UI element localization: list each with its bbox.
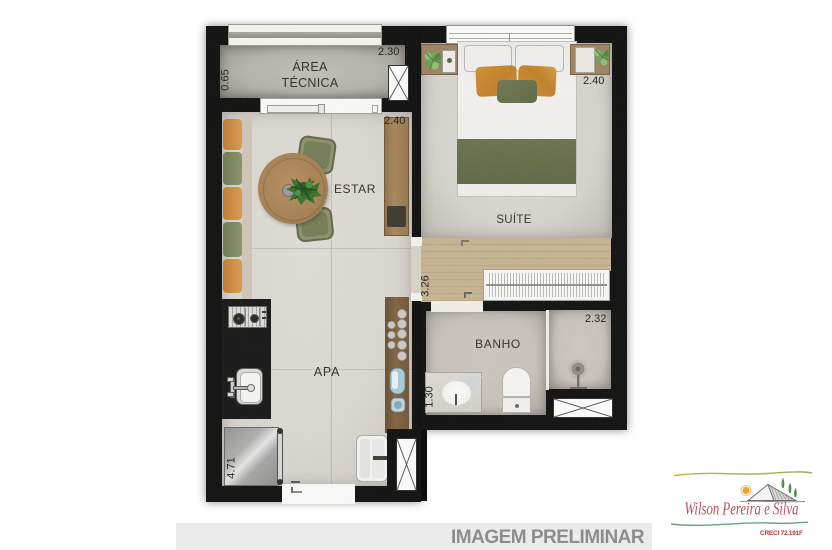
svg-text:Wilson Pereira e Silva: Wilson Pereira e Silva bbox=[685, 499, 799, 519]
svg-text:CRECI 72.191F: CRECI 72.191F bbox=[760, 530, 803, 537]
